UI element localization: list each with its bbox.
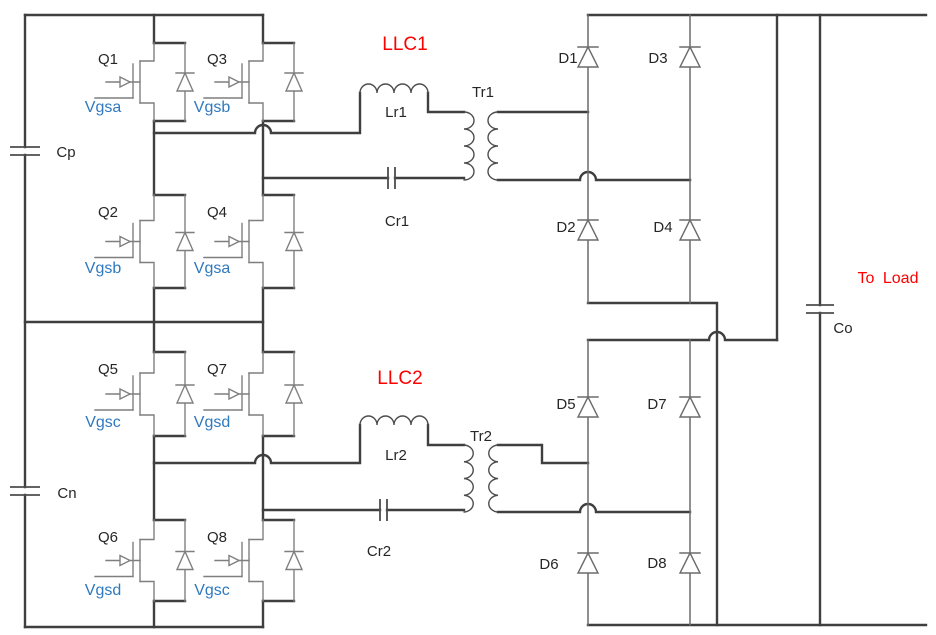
capacitor-co-label: Co (833, 320, 852, 337)
circuit-page: Q1 Q3 Q2 Q4 Q5 Q7 Q6 Q8 Vgsa Vgsb Vgsb V… (0, 0, 936, 635)
diode-d4-triangle (680, 220, 700, 240)
mosfet-q6-drain-link (140, 520, 154, 540)
diode-d2-triangle (578, 220, 598, 240)
mosfet-q5-label: Q5 (98, 361, 118, 378)
wires-layer (10, 15, 926, 627)
mosfet-q1-drain-link (140, 43, 154, 61)
mosfet-q8-arrow (229, 556, 239, 566)
inductor-lr2-symbol (360, 416, 428, 425)
gate-label-q8: Vgsc (194, 582, 230, 599)
diode-d2-label: D2 (556, 219, 575, 236)
rect1-bottom-rail (588, 303, 717, 625)
mosfet-q1-arrow (120, 77, 130, 87)
capacitor-cr2-label: Cr2 (367, 543, 391, 560)
to-load-label: To Load (858, 270, 919, 287)
mosfet-q7-source-link (249, 415, 263, 436)
tr1-secondary-bot-wire (498, 172, 690, 180)
diode-d1-label: D1 (558, 50, 577, 67)
diode-d6-label: D6 (539, 556, 558, 573)
transformer-tr1-label: Tr1 (472, 84, 494, 101)
diode-d5-triangle (578, 397, 598, 417)
mosfet-q5-body-diode-triangle (177, 385, 193, 403)
mosfet-q5-drain-link (140, 352, 154, 373)
mosfet-q4-drain-link (249, 195, 263, 221)
mosfet-q8-source-link (249, 582, 263, 602)
diode-d1-triangle (578, 47, 598, 67)
lr2-to-tr2-wire (428, 425, 464, 445)
inductor-lr1-label: Lr1 (385, 104, 407, 121)
gate-label-q6: Vgsd (85, 582, 121, 599)
transformer-tr1-primary-winding (464, 112, 474, 180)
mosfet-q2-source-link (140, 263, 154, 289)
mosfet-q6-source-link (140, 582, 154, 602)
mosfet-q7-arrow (229, 389, 239, 399)
capacitor-cn-label: Cn (57, 485, 76, 502)
mosfet-q4-label: Q4 (207, 204, 227, 221)
diode-d8-triangle (680, 553, 700, 573)
mosfet-q6-arrow (120, 556, 130, 566)
mosfet-q2-body-diode-triangle (177, 233, 193, 251)
diode-d7-label: D7 (647, 396, 666, 413)
lr1-to-tr1-wire (428, 93, 464, 112)
mosfet-q4-body-diode-triangle (286, 233, 302, 251)
gate-label-q3: Vgsb (194, 99, 231, 116)
mosfet-q2-label: Q2 (98, 204, 118, 221)
dual-llc-converter-schematic: Q1 Q3 Q2 Q4 Q5 Q7 Q6 Q8 Vgsa Vgsb Vgsb V… (0, 0, 936, 635)
transformer-tr2-label: Tr2 (470, 428, 492, 445)
gate-label-q4: Vgsa (194, 260, 231, 277)
mosfet-q8-label: Q8 (207, 529, 227, 546)
gate-label-q1: Vgsa (85, 99, 122, 116)
mosfet-q7-label: Q7 (207, 361, 227, 378)
diode-d3-triangle (680, 47, 700, 67)
mosfet-q1-body-diode-triangle (177, 73, 193, 91)
mosfet-q8-drain-link (249, 520, 263, 540)
mosfet-q7-body-diode-triangle (286, 385, 302, 403)
transformer-tr1-secondary-winding (488, 112, 498, 180)
mosfet-q6-body-diode-triangle (177, 552, 193, 570)
mosfet-q5-arrow (120, 389, 130, 399)
llc1-title: LLC1 (382, 34, 427, 55)
rect2-top-rail (588, 332, 777, 340)
mosfet-q3-arrow (229, 77, 239, 87)
mosfet-q2-arrow (120, 237, 130, 247)
llc2-title: LLC2 (377, 368, 422, 389)
diode-d3-label: D3 (648, 50, 667, 67)
tr2-secondary-top-wire (498, 445, 588, 463)
labels-layer: Q1 Q3 Q2 Q4 Q5 Q7 Q6 Q8 Vgsa Vgsb Vgsb V… (56, 34, 918, 599)
mosfet-q1-label: Q1 (98, 51, 118, 68)
inductor-lr1-symbol (360, 84, 428, 93)
diode-d8-label: D8 (647, 555, 666, 572)
mosfet-q4-arrow (229, 237, 239, 247)
mosfet-q3-body-diode-triangle (286, 73, 302, 91)
gate-label-q7: Vgsd (194, 414, 230, 431)
mosfet-q5-source-link (140, 415, 154, 436)
mosfet-q6-label: Q6 (98, 529, 118, 546)
mosfet-q8-body-diode-triangle (286, 552, 302, 570)
mosfet-q7-drain-link (249, 352, 263, 373)
mosfet-q3-drain-link (249, 43, 263, 61)
mosfet-q3-label: Q3 (207, 51, 227, 68)
transformer-tr2-secondary-winding (489, 445, 498, 512)
capacitor-cp-label: Cp (56, 144, 75, 161)
mosfet-q4-source-link (249, 263, 263, 289)
diode-d4-label: D4 (653, 219, 672, 236)
transformer-tr2-primary-winding (464, 445, 473, 512)
mosfet-q3-source-link (249, 103, 263, 121)
gate-label-q2: Vgsb (85, 260, 122, 277)
tr2-secondary-bot-wire (498, 504, 690, 512)
mosfet-q1-source-link (140, 103, 154, 121)
diode-d7-triangle (680, 397, 700, 417)
diode-d5-label: D5 (556, 396, 575, 413)
inductor-lr2-label: Lr2 (385, 447, 407, 464)
diode-d6-triangle (578, 553, 598, 573)
mosfet-q2-drain-link (140, 195, 154, 221)
capacitor-cr1-label: Cr1 (385, 213, 409, 230)
gate-label-q5: Vgsc (85, 414, 121, 431)
